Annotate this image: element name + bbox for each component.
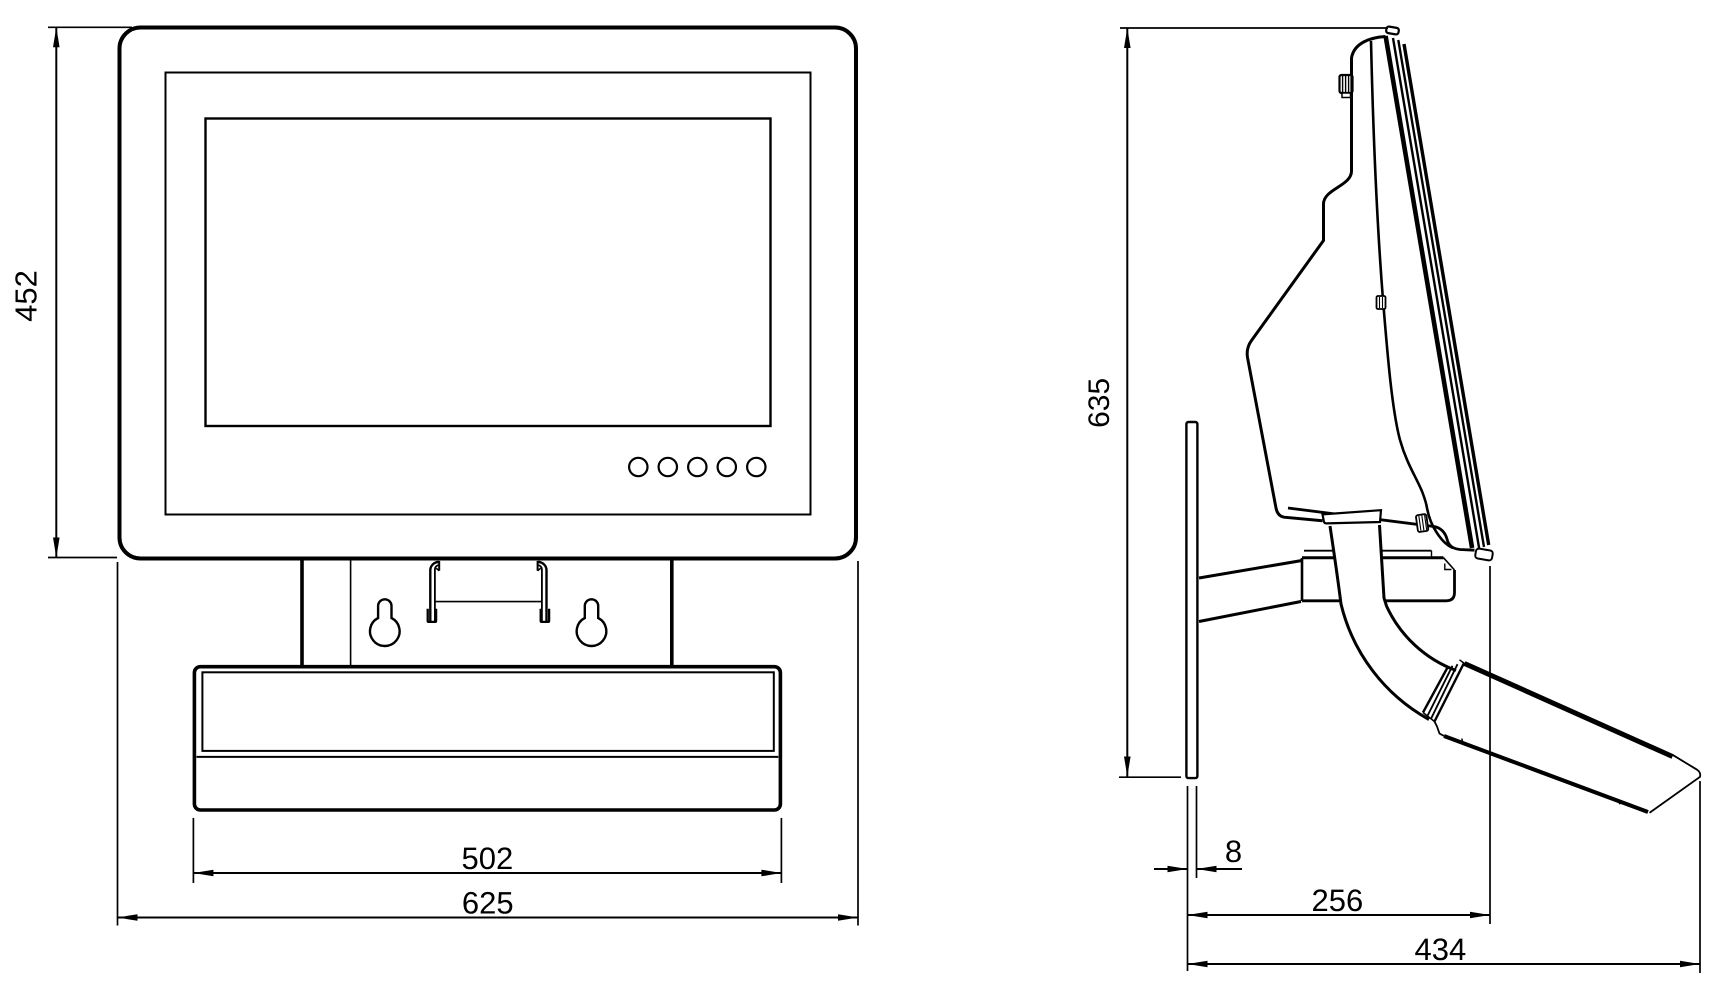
svg-text:256: 256: [1312, 883, 1364, 918]
svg-text:502: 502: [462, 841, 514, 876]
svg-text:434: 434: [1415, 932, 1467, 967]
svg-text:625: 625: [462, 885, 514, 920]
svg-text:635: 635: [1083, 378, 1116, 428]
svg-text:452: 452: [9, 270, 44, 322]
svg-text:8: 8: [1225, 834, 1242, 869]
